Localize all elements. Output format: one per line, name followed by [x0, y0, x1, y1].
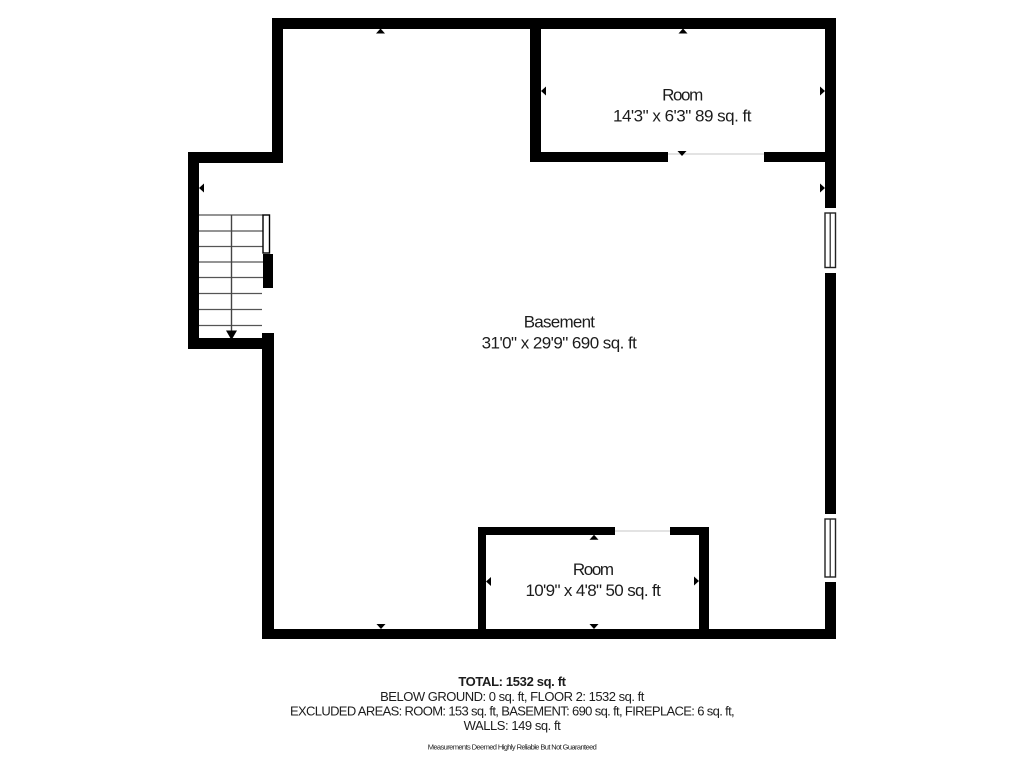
svg-text:Measurements Deemed Highly Rel: Measurements Deemed Highly Reliable But … — [428, 742, 597, 751]
svg-text:TOTAL: 1532 sq. ft: TOTAL: 1532 sq. ft — [458, 674, 566, 689]
svg-text:Room: Room — [662, 86, 703, 105]
svg-text:Basement: Basement — [524, 313, 596, 332]
svg-text:10'9" x 4'8" 50 sq. ft: 10'9" x 4'8" 50 sq. ft — [525, 581, 661, 600]
svg-text:EXCLUDED AREAS: ROOM: 153 sq.: EXCLUDED AREAS: ROOM: 153 sq. ft, BASEME… — [290, 704, 734, 719]
svg-text:BELOW GROUND: 0 sq. ft, FLOOR: BELOW GROUND: 0 sq. ft, FLOOR 2: 1532 sq… — [380, 689, 645, 704]
svg-text:Room: Room — [573, 560, 614, 579]
svg-text:31'0" x 29'9" 690 sq. ft: 31'0" x 29'9" 690 sq. ft — [482, 333, 638, 352]
svg-text:WALLS: 149 sq. ft: WALLS: 149 sq. ft — [464, 718, 561, 733]
svg-text:14'3" x 6'3" 89 sq. ft: 14'3" x 6'3" 89 sq. ft — [613, 106, 752, 125]
